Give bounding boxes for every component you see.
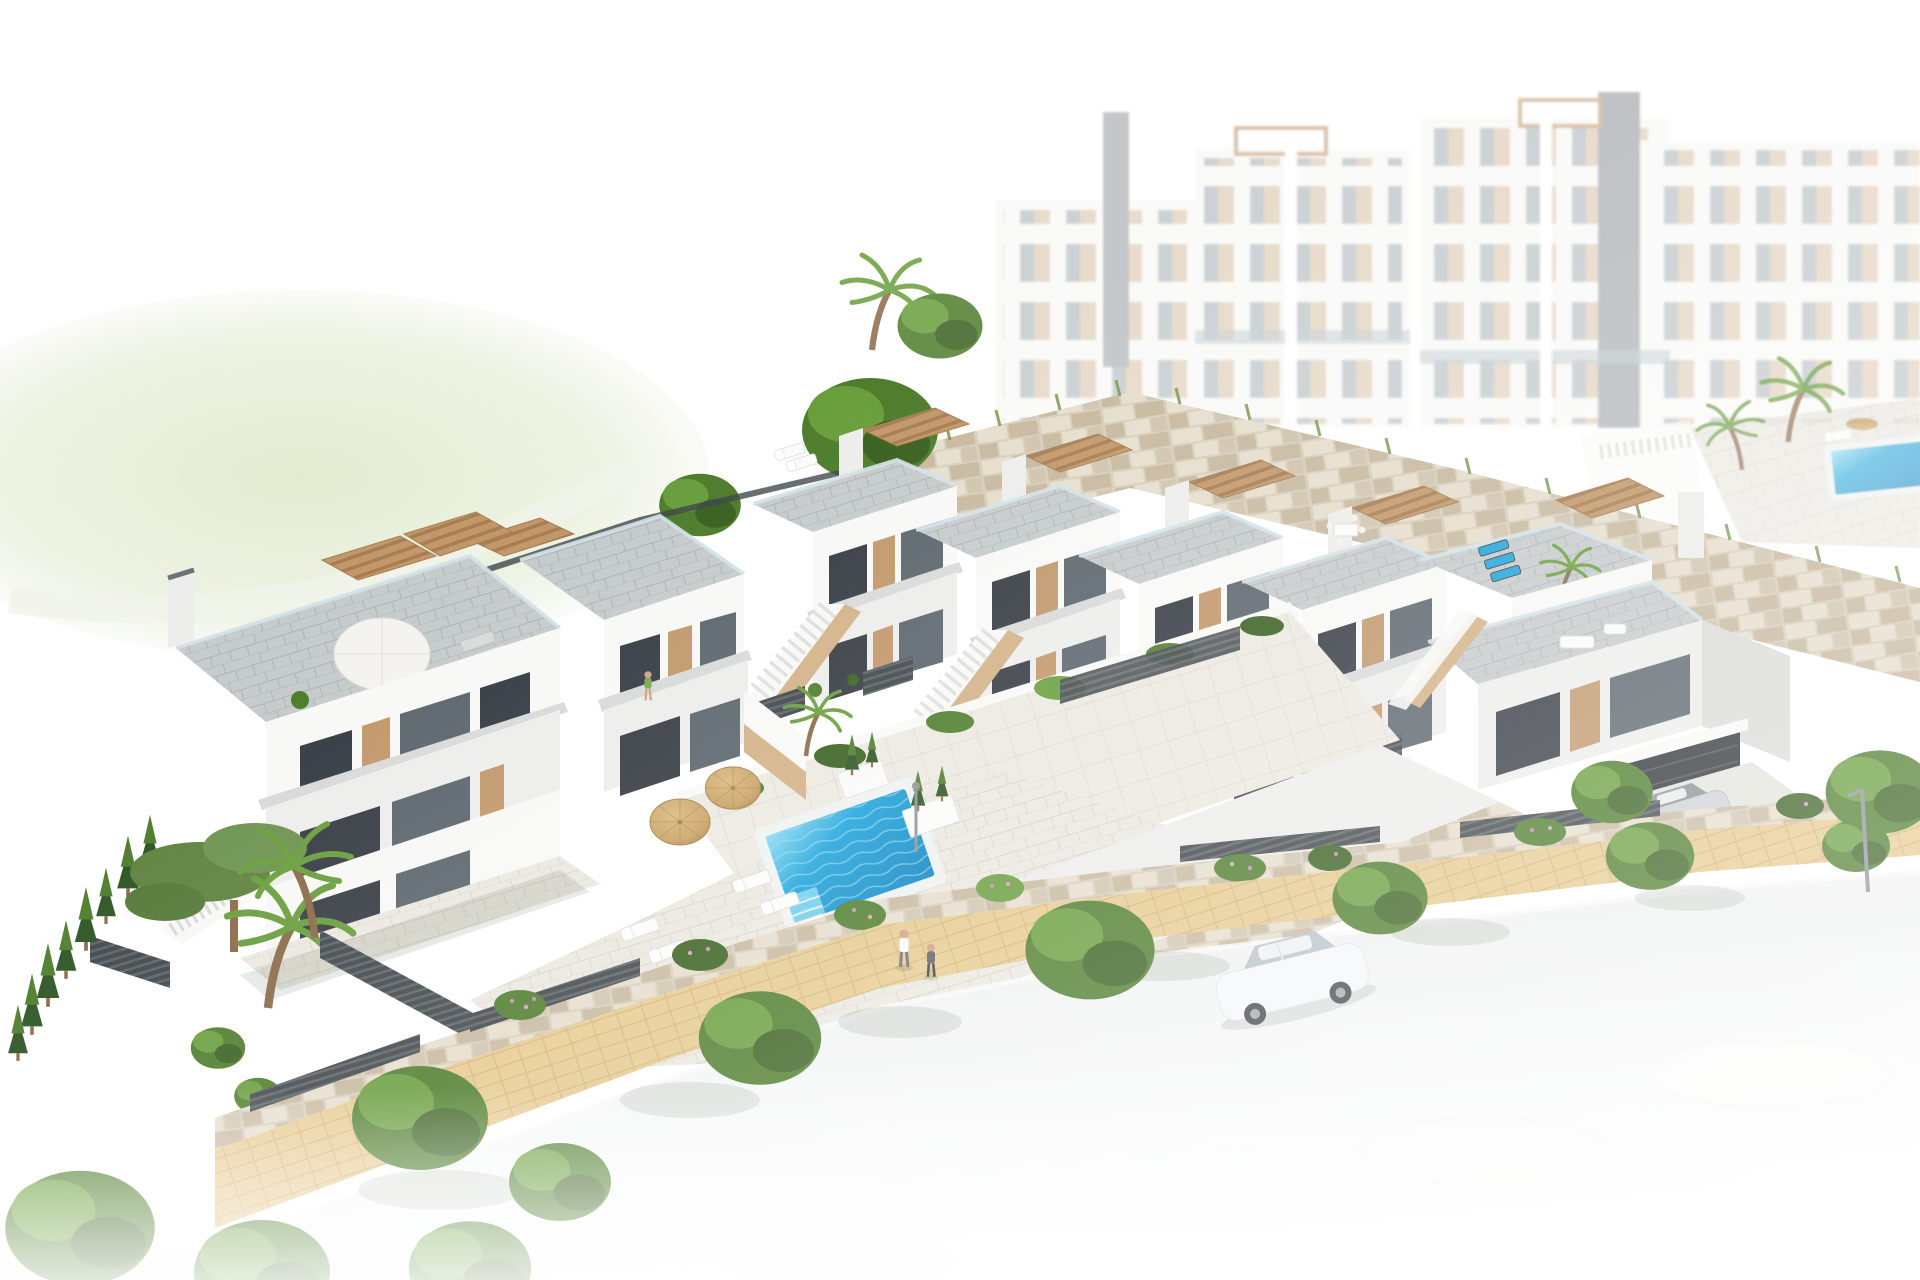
render-stage: Aerial 3D architectural visualization of…: [0, 0, 1920, 1280]
bottom-fade-overlay: [0, 0, 1920, 1280]
aerial-render-image: [0, 0, 1920, 1280]
